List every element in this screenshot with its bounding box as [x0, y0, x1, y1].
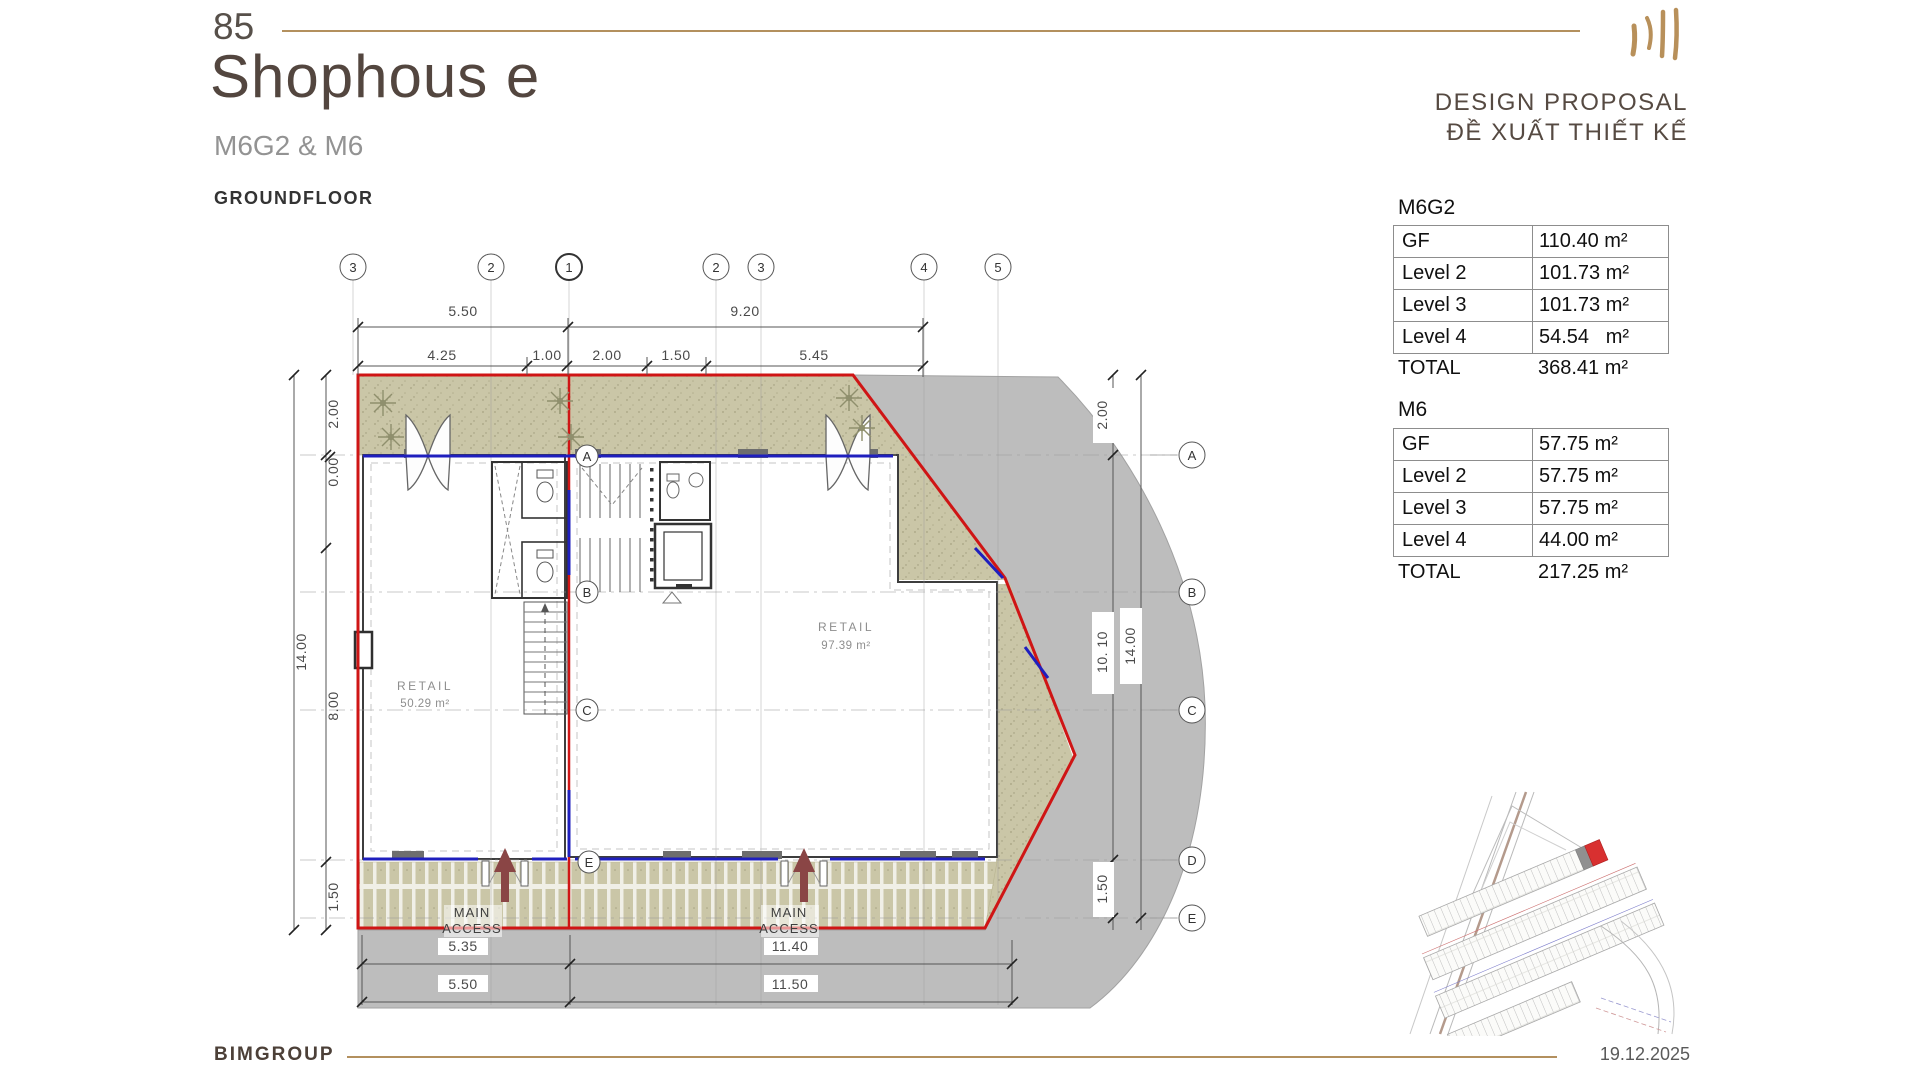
level-label: GF [1394, 429, 1533, 460]
dim-label: 0.00 [325, 457, 341, 486]
table-row: Level 2101.73 m² [1394, 258, 1668, 290]
grid-bubbles-top: 3 2 1 2 3 4 5 [340, 254, 1011, 280]
dim-label: 14.00 [293, 633, 309, 671]
main-access-label-m6: MAIN ACCESS [759, 905, 819, 937]
grid-bubble-label: 3 [349, 260, 356, 275]
proposal-heading-en: DESIGN PROPOSAL [1435, 88, 1688, 118]
table-total-row: TOTAL 217.25 m² [1393, 557, 1667, 587]
dim-label: 5.50 [448, 976, 477, 992]
keymap-lot-strips [1401, 829, 1679, 1036]
grid-bubble-label: 3 [757, 260, 764, 275]
unit-subtitle: M6G2 & M6 [214, 130, 363, 162]
grid-bubble-label: 2 [712, 260, 719, 275]
dim-label: 11.50 [772, 976, 809, 992]
level-label: Level 4 [1394, 525, 1533, 556]
grid-bubble-label: D [1187, 853, 1196, 868]
dim-label: 11.40 [772, 938, 809, 954]
dim-label: 1.50 [1094, 874, 1110, 903]
page-title: Shophous e [210, 42, 540, 111]
main-access-text: MAIN [454, 905, 491, 920]
level-label: Level 3 [1394, 493, 1533, 524]
proposal-heading: DESIGN PROPOSAL ĐỀ XUẤT THIẾT KẾ [1435, 88, 1688, 148]
main-access-text: ACCESS [442, 921, 501, 936]
dim-label: 5.50 [448, 303, 477, 319]
total-value: 217.25 m² [1532, 557, 1667, 587]
grid-bubble-label: E [585, 855, 594, 870]
grid-bubble-label: B [583, 585, 592, 600]
grid-bubble-label: 4 [920, 260, 927, 275]
dim-label: 1.50 [325, 882, 341, 911]
header-divider-line [282, 30, 1580, 32]
main-access-text: MAIN [771, 905, 808, 920]
total-value: 368.41 m² [1532, 353, 1667, 383]
grid-bubble-label: A [583, 449, 592, 464]
room-area: 50.29 m² [400, 698, 449, 710]
area-value: 101.73 m² [1533, 258, 1668, 289]
table-title-m6: M6 [1398, 398, 1427, 422]
grid-bubble-label: C [1187, 703, 1196, 718]
dim-label: 2.00 [1094, 400, 1110, 429]
grid-bubble-label: 5 [994, 260, 1001, 275]
area-value: 54.54 m² [1533, 322, 1668, 353]
dim-label: 1.00 [532, 347, 561, 363]
dim-label: 5.35 [448, 938, 477, 954]
area-value: 110.40 m² [1533, 226, 1668, 257]
table-row: Level 3101.73 m² [1394, 290, 1668, 322]
dim-label: 14.00 [1122, 627, 1138, 665]
unit-m6g2-footprint [363, 455, 565, 859]
table-row: Level 454.54 m² [1394, 322, 1668, 353]
main-access-text: ACCESS [759, 921, 818, 936]
dim-label: 10. 10 [1094, 631, 1110, 673]
table-total-row: TOTAL 368.41 m² [1393, 353, 1667, 383]
room-name: RETAIL [397, 679, 453, 693]
level-label: Level 2 [1394, 461, 1533, 492]
grid-bubble-label: 2 [487, 260, 494, 275]
grid-bubble-label: E [1188, 911, 1197, 926]
table-title-m6g2: M6G2 [1398, 196, 1455, 220]
total-label: TOTAL [1393, 557, 1532, 587]
dim-label: 9.20 [730, 303, 759, 319]
table-row: Level 444.00 m² [1394, 525, 1668, 556]
slide-canvas: 85 Shophous e M6G2 & M6 GROUNDFLOOR DESI… [0, 0, 1920, 1080]
area-value: 57.75 m² [1533, 493, 1668, 524]
table-row: Level 357.75 m² [1394, 493, 1668, 525]
room-name: RETAIL [818, 620, 874, 634]
area-value: 101.73 m² [1533, 290, 1668, 321]
level-label: Level 3 [1394, 290, 1533, 321]
company-name: BIMGROUP [214, 1044, 335, 1066]
room-area: 97.39 m² [821, 640, 870, 652]
table-row: GF110.40 m² [1394, 226, 1668, 258]
table-row: Level 257.75 m² [1394, 461, 1668, 493]
main-access-label-m6g2: MAIN ACCESS [442, 905, 502, 937]
floor-label: GROUNDFLOOR [214, 188, 374, 209]
area-value: 57.75 m² [1533, 461, 1668, 492]
brand-logo-icon [1622, 4, 1692, 66]
grid-bubble-label: B [1188, 585, 1197, 600]
dim-label: 1.50 [661, 347, 690, 363]
footer-divider-line [347, 1056, 1557, 1058]
area-value: 57.75 m² [1533, 429, 1668, 460]
level-label: GF [1394, 226, 1533, 257]
grid-bubble-label: C [582, 703, 591, 718]
date-label: 19.12.2025 [1560, 1044, 1690, 1065]
grid-bubble-label: 1 [565, 260, 572, 275]
dim-label: 5.45 [799, 347, 828, 363]
floorplan-drawing: 5.50 9.20 4.25 1.00 2.00 1.50 5.45 2.00 … [230, 240, 1260, 1040]
area-table-m6: GF57.75 m² Level 257.75 m² Level 357.75 … [1393, 428, 1669, 557]
table-row: GF57.75 m² [1394, 429, 1668, 461]
grid-bubble-label: A [1188, 448, 1197, 463]
area-table-m6g2: GF110.40 m² Level 2101.73 m² Level 3101.… [1393, 225, 1669, 354]
proposal-heading-vi: ĐỀ XUẤT THIẾT KẾ [1435, 118, 1688, 148]
dim-label: 2.00 [325, 399, 341, 428]
total-label: TOTAL [1393, 353, 1532, 383]
site-key-map [1396, 786, 1694, 1036]
area-value: 44.00 m² [1533, 525, 1668, 556]
dim-label: 8.00 [325, 691, 341, 720]
level-label: Level 4 [1394, 322, 1533, 353]
dim-label: 4.25 [427, 347, 456, 363]
dim-label: 2.00 [592, 347, 621, 363]
level-label: Level 2 [1394, 258, 1533, 289]
